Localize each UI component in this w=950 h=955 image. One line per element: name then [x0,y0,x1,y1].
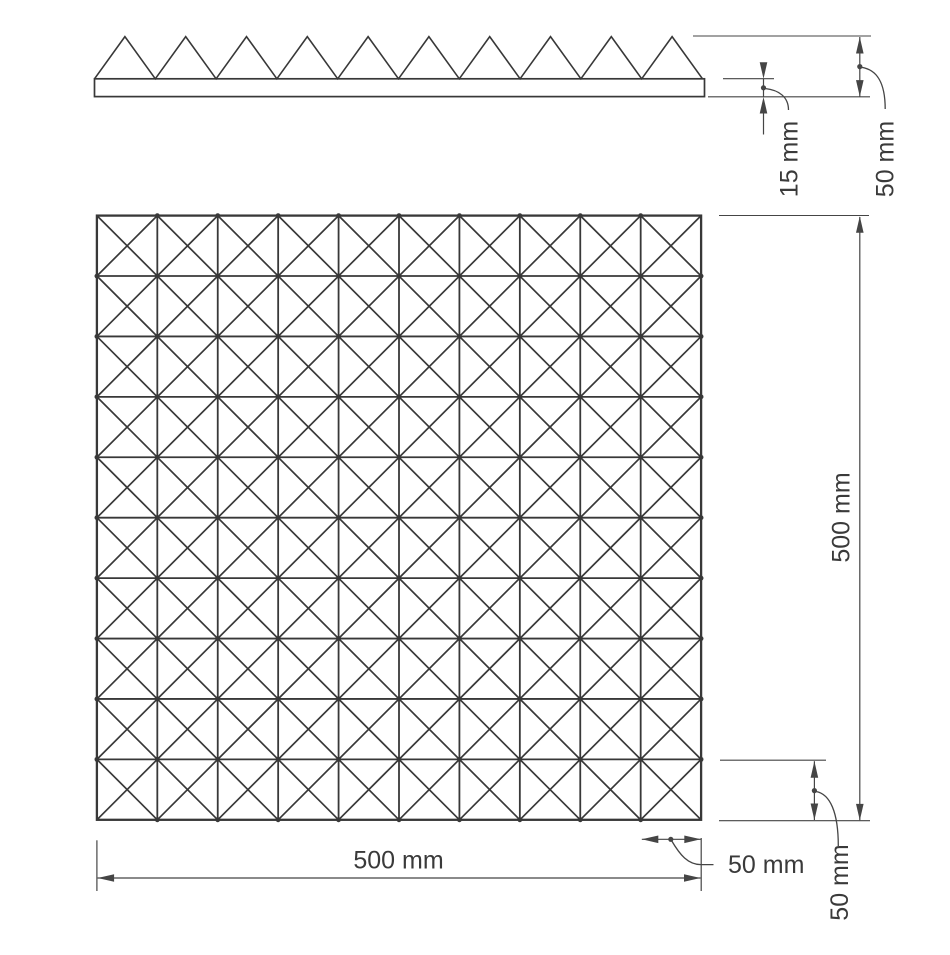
svg-text:50 mm: 50 mm [872,121,900,197]
svg-text:500 mm: 500 mm [353,846,443,874]
svg-text:50 mm: 50 mm [728,851,804,879]
svg-text:15 mm: 15 mm [776,121,804,197]
svg-text:500 mm: 500 mm [828,472,856,562]
svg-text:50 mm: 50 mm [826,844,854,920]
